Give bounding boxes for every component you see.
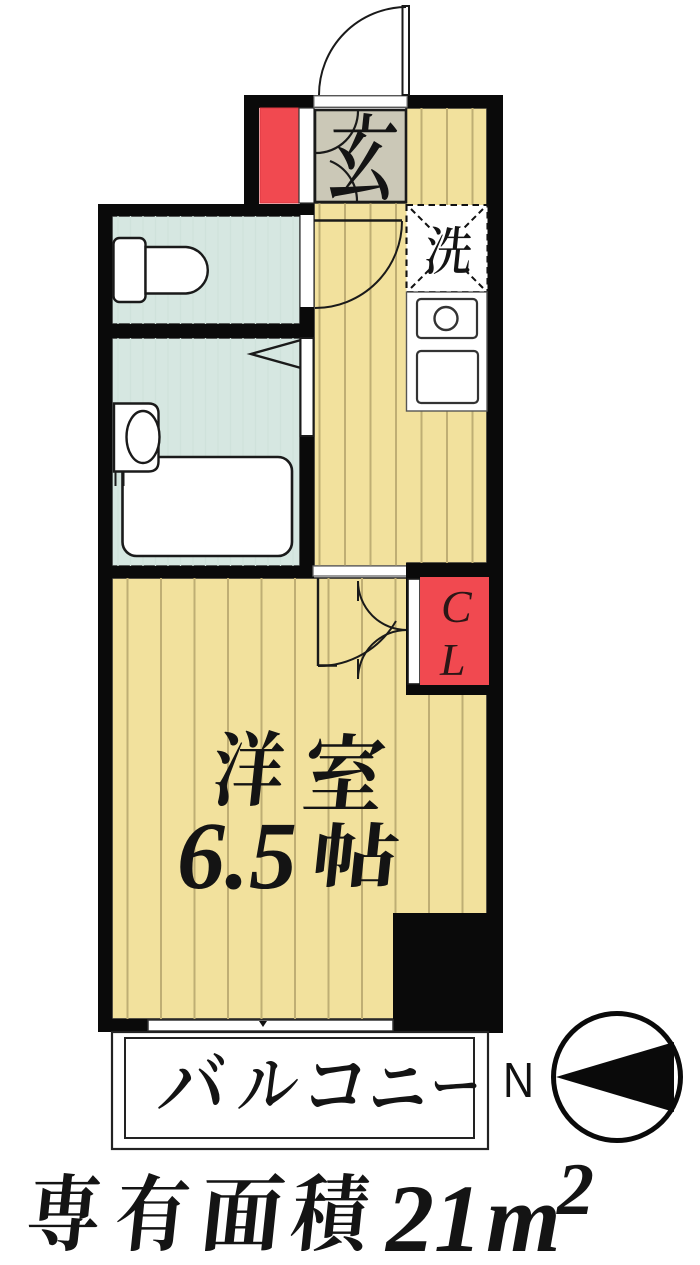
svg-text:N: N bbox=[503, 1054, 534, 1108]
svg-text:C: C bbox=[441, 581, 473, 632]
svg-text:6.5: 6.5 bbox=[177, 802, 297, 909]
svg-text:21: 21 bbox=[384, 1165, 482, 1265]
svg-text:2: 2 bbox=[556, 1149, 594, 1231]
svg-text:L: L bbox=[439, 634, 466, 685]
svg-text:m: m bbox=[486, 1165, 561, 1265]
